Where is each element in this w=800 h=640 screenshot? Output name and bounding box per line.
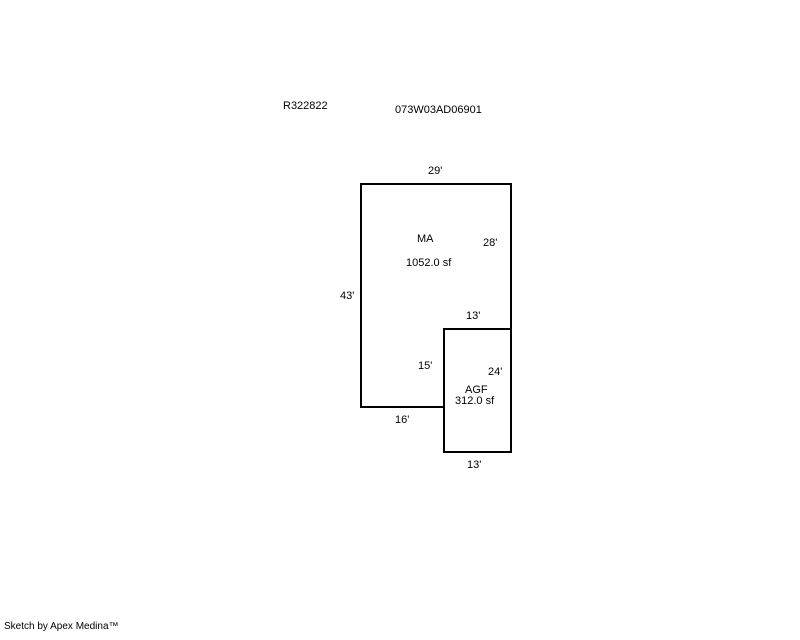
- dimension-label-notch-side: 15': [418, 360, 432, 372]
- dimension-label-agf-right: 24': [488, 366, 502, 378]
- dimension-label-ma-left: 43': [340, 290, 354, 302]
- ma-area-size: 1052.0 sf: [406, 257, 451, 269]
- agf-area-size: 312.0 sf: [455, 395, 494, 407]
- sketch-credit: Sketch by Apex Medina™: [4, 621, 119, 633]
- dimension-label-agf-bottom: 13': [467, 459, 481, 471]
- sketch-page: R322822 073W03AD06901 MA 1052.0 sf AGF 3…: [0, 0, 800, 640]
- building-sketch: [0, 0, 800, 640]
- dimension-label-ma-top: 29': [428, 165, 442, 177]
- dimension-label-ma-bottom: 16': [395, 414, 409, 426]
- dimension-label-ma-right: 28': [483, 237, 497, 249]
- dimension-label-notch-top: 13': [466, 310, 480, 322]
- ma-area-label: MA: [417, 233, 434, 245]
